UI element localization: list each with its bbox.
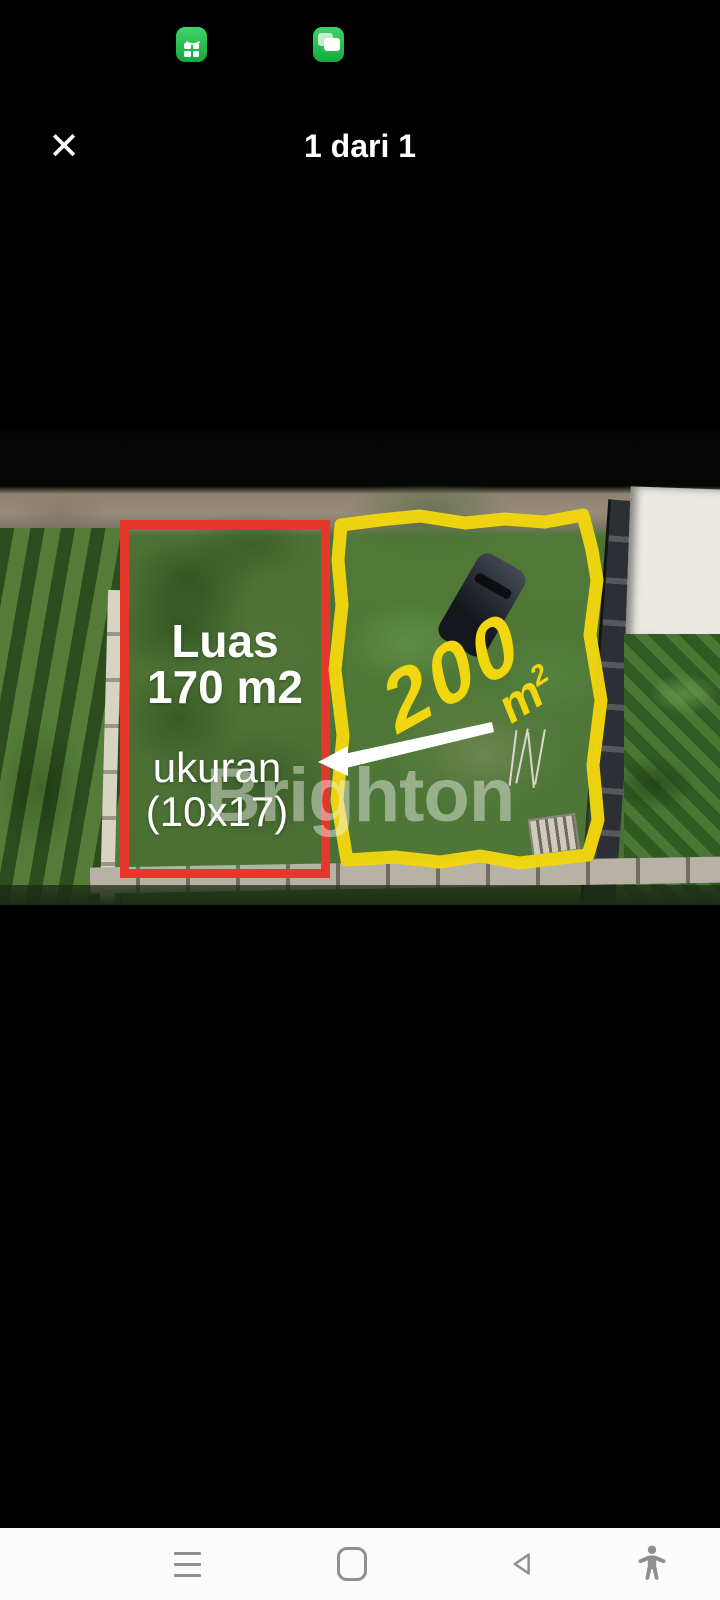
accessibility-button[interactable] bbox=[616, 1528, 688, 1600]
android-nav-bar bbox=[0, 1528, 720, 1600]
back-icon bbox=[508, 1549, 538, 1579]
accessibility-icon bbox=[635, 1545, 669, 1583]
red-plot-title: Luas bbox=[120, 618, 330, 664]
messages-notification-icon bbox=[313, 27, 344, 62]
home-button[interactable] bbox=[316, 1528, 388, 1600]
home-icon bbox=[337, 1547, 367, 1581]
phone-screen: 1 dari 1 ✕ Luas 170 m2 ukur bbox=[0, 0, 720, 1600]
back-button[interactable] bbox=[487, 1528, 559, 1600]
menu-icon bbox=[174, 1552, 201, 1577]
menu-button[interactable] bbox=[151, 1528, 223, 1600]
shop-grid-notification-icon bbox=[176, 27, 207, 62]
red-plot-label: Luas 170 m2 bbox=[120, 618, 330, 710]
brighton-watermark: Brighton bbox=[0, 752, 720, 839]
close-icon[interactable]: ✕ bbox=[40, 122, 88, 170]
red-plot-area: 170 m2 bbox=[120, 664, 330, 710]
image-viewer-header: 1 dari 1 ✕ bbox=[0, 106, 720, 186]
status-bar bbox=[0, 0, 720, 90]
land-aerial-photo[interactable]: Luas 170 m2 ukuran (10x17) 200 m2 Bright… bbox=[0, 430, 720, 905]
page-counter: 1 dari 1 bbox=[0, 106, 720, 186]
